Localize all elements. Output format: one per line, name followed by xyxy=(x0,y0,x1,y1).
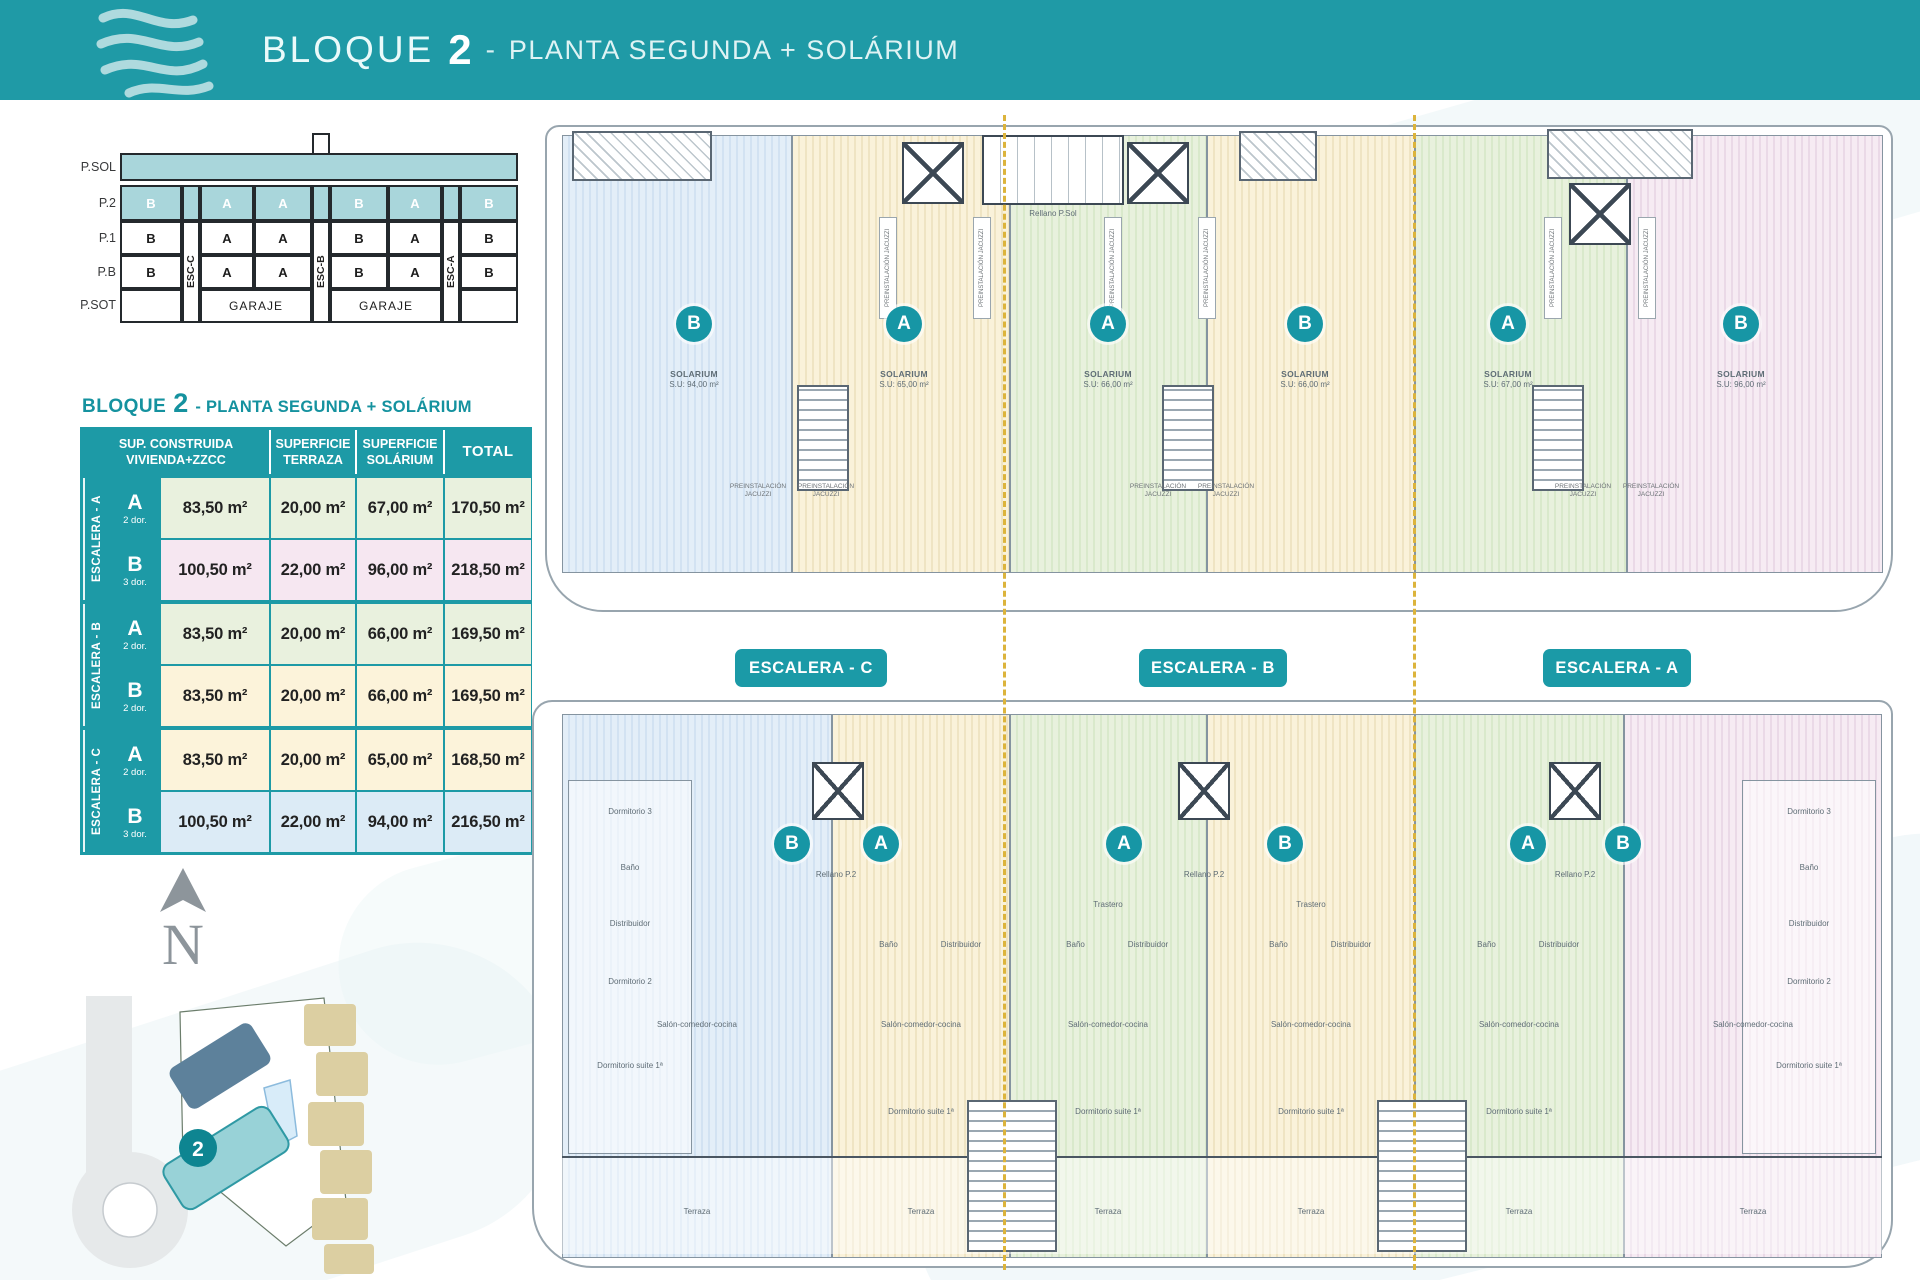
solarium-area-label: SOLARIUMS.U: 96,00 m² xyxy=(1686,369,1796,390)
floor-plan-sheet: BLOQUE 2 - PLANTA SEGUNDA + SOLÁRIUM P.S… xyxy=(0,0,1920,1280)
room-label-suite: Dormitorio suite 1ª xyxy=(1256,1107,1366,1117)
building-stack-diagram: P.SOL P.2 P.1 P.B P.SOT B A A B A B B A … xyxy=(78,133,520,323)
cell-total: 169,50 m² xyxy=(445,666,531,726)
room-label-dormitorio-3: Dormitorio 3 xyxy=(575,807,685,817)
unit-letter-badge: B xyxy=(1287,306,1323,342)
stack-cell-pb: A xyxy=(388,255,442,289)
stack-esc-cell xyxy=(442,185,460,221)
room-label-distribuidor: Distribuidor xyxy=(575,919,685,929)
cell-vivienda: 83,50 m² xyxy=(161,604,269,664)
unit-badge: B 3 dor. xyxy=(111,792,159,852)
table-header-terraza: SUPERFICIE TERRAZA xyxy=(271,430,355,474)
north-arrow-icon xyxy=(158,868,208,914)
table-header-construida: SUP. CONSTRUIDA VIVIENDA+ZZCC xyxy=(83,430,269,474)
solarium-unit-region-b xyxy=(1207,135,1415,573)
stack-cell-p2: A xyxy=(200,185,254,221)
elevator-core xyxy=(1127,142,1189,204)
stairs xyxy=(1532,385,1584,491)
room-label-salon: Salón-comedor-cocina xyxy=(1256,1020,1366,1030)
stairs xyxy=(1162,385,1214,491)
terraza-label: Terraza xyxy=(1469,1207,1569,1217)
solarium-unit-region-b xyxy=(1627,135,1883,573)
escalera-b-banner: ESCALERA - B xyxy=(1139,649,1287,687)
room-label-trastero: Trastero xyxy=(1276,900,1346,910)
cell-vivienda: 83,50 m² xyxy=(161,478,269,538)
table-header-total: TOTAL xyxy=(445,430,531,474)
unit-letter-badge: B xyxy=(774,826,810,862)
preinstalacion-jacuzzi-label: PREINSTALACIÓN JACUZZI xyxy=(1198,217,1216,319)
section-divider-line xyxy=(1003,115,1006,1270)
cell-total: 169,50 m² xyxy=(445,604,531,664)
room-label-distribuidor: Distribuidor xyxy=(1113,940,1183,950)
stack-cell-psot-empty xyxy=(460,289,518,323)
unit-letter-badge: A xyxy=(1490,306,1526,342)
table-group-escalera-a: ESCALERA - A A 2 dor. 83,50 m² 20,00 m² … xyxy=(83,478,529,600)
site-plan: 2 xyxy=(68,996,390,1278)
cell-solarium: 65,00 m² xyxy=(357,730,443,790)
stack-cell-p1: B xyxy=(460,221,518,255)
stack-garaje-cell: GARAJE xyxy=(200,289,312,323)
stairs xyxy=(1377,1100,1467,1252)
stack-garaje-cell: GARAJE xyxy=(330,289,442,323)
preinstalacion-jacuzzi-label: PREINSTALACIÓN JACUZZI xyxy=(1620,483,1682,499)
section-divider-line xyxy=(1413,115,1416,1270)
header-bar: BLOQUE 2 - PLANTA SEGUNDA + SOLÁRIUM xyxy=(0,0,1920,100)
unit-badge: A 2 dor. xyxy=(111,604,159,664)
cell-vivienda: 100,50 m² xyxy=(161,792,269,852)
cell-total: 168,50 m² xyxy=(445,730,531,790)
cell-vivienda: 83,50 m² xyxy=(161,730,269,790)
stack-row-label: P.B xyxy=(78,265,116,279)
stack-row-label: P.2 xyxy=(78,196,116,210)
room-label-dormitorio-2: Dormitorio 2 xyxy=(1754,977,1864,987)
terraza-label: Terraza xyxy=(647,1207,747,1217)
group-label-escalera-c: ESCALERA - C xyxy=(83,730,109,852)
terraza-label: Terraza xyxy=(1058,1207,1158,1217)
cell-total: 170,50 m² xyxy=(445,478,531,538)
terraza-label: Terraza xyxy=(1703,1207,1803,1217)
terraza-label: Terraza xyxy=(1261,1207,1361,1217)
escalera-c-banner: ESCALERA - C xyxy=(735,649,887,687)
cell-terraza: 22,00 m² xyxy=(271,540,355,600)
unit-letter-badge: A xyxy=(886,306,922,342)
end-unit-rooms: Dormitorio 3 Baño Distribuidor Dormitori… xyxy=(568,780,692,1154)
north-label: N xyxy=(138,919,228,971)
stack-tower xyxy=(312,133,330,155)
room-label-bano: Baño xyxy=(1459,940,1514,950)
solarium-unit-region-a xyxy=(792,135,1010,573)
stack-cell-pb: B xyxy=(330,255,388,289)
cell-solarium: 66,00 m² xyxy=(357,666,443,726)
elevator-core xyxy=(1569,183,1631,245)
room-label-dormitorio-3: Dormitorio 3 xyxy=(1754,807,1864,817)
solarium-area-label: SOLARIUMS.U: 94,00 m² xyxy=(639,369,749,390)
stack-psol-band xyxy=(120,153,518,181)
solarium-area-label: SOLARIUMS.U: 66,00 m² xyxy=(1250,369,1360,390)
terraza-strip xyxy=(562,1156,1882,1254)
title-separator: - xyxy=(486,34,495,66)
solarium-area-label: SOLARIUMS.U: 66,00 m² xyxy=(1053,369,1163,390)
stack-cell-p1: A xyxy=(200,221,254,255)
room-label-distribuidor: Distribuidor xyxy=(1316,940,1386,950)
stack-cell-p2: A xyxy=(254,185,312,221)
unit-letter-badge: A xyxy=(1090,306,1126,342)
room-label-salon: Salón-comedor-cocina xyxy=(1464,1020,1574,1030)
unit-badge: A 2 dor. xyxy=(111,478,159,538)
cell-total: 218,50 m² xyxy=(445,540,531,600)
room-label-bano: Baño xyxy=(1251,940,1306,950)
room-label-suite: Dormitorio suite 1ª xyxy=(1464,1107,1574,1117)
end-unit-rooms: Dormitorio 3 Baño Distribuidor Dormitori… xyxy=(1742,780,1876,1154)
room-label-bano: Baño xyxy=(1048,940,1103,950)
preinstalacion-jacuzzi-label: PREINSTALACIÓN JACUZZI xyxy=(1195,483,1257,499)
unit-letter-badge: B xyxy=(1267,826,1303,862)
title-subtitle: PLANTA SEGUNDA + SOLÁRIUM xyxy=(509,35,959,66)
room-label-suite: Dormitorio suite 1ª xyxy=(1053,1107,1163,1117)
page-title: BLOQUE 2 - PLANTA SEGUNDA + SOLÁRIUM xyxy=(262,0,959,100)
cell-vivienda: 83,50 m² xyxy=(161,666,269,726)
stack-esc-b-label: ESC-B xyxy=(312,221,330,323)
preinstalacion-jacuzzi-label: PREINSTALACIÓN JACUZZI xyxy=(727,483,789,499)
stack-cell-pb: A xyxy=(200,255,254,289)
cell-terraza: 20,00 m² xyxy=(271,478,355,538)
preinstalacion-jacuzzi-label: PREINSTALACIÓN JACUZZI xyxy=(879,217,897,319)
table-header-solarium: SUPERFICIE SOLÁRIUM xyxy=(357,430,443,474)
cell-terraza: 20,00 m² xyxy=(271,604,355,664)
cell-solarium: 66,00 m² xyxy=(357,604,443,664)
room-label-bano: Baño xyxy=(1754,863,1864,873)
stack-cell-p2: A xyxy=(388,185,442,221)
stack-esc-cell xyxy=(312,185,330,221)
preinstalacion-jacuzzi-label: PREINSTALACIÓN JACUZZI xyxy=(1552,483,1614,499)
elevator-core xyxy=(1549,762,1601,820)
room-label-salon: Salón-comedor-cocina xyxy=(1698,1020,1808,1030)
stack-cell-pb: B xyxy=(460,255,518,289)
table-title-number: 2 xyxy=(173,388,188,419)
solarium-floor-plan: Rellano P.Sol PREINSTALACIÓN JACUZZI PRE… xyxy=(545,125,1893,612)
cell-total: 216,50 m² xyxy=(445,792,531,852)
room-label-suite: Dormitorio suite 1ª xyxy=(575,1061,685,1071)
room-label-bano: Baño xyxy=(861,940,916,950)
roof-hatch-area xyxy=(572,131,712,181)
title-block-label: BLOQUE xyxy=(262,29,434,71)
stack-row-label: P.1 xyxy=(78,231,116,245)
elevator-core xyxy=(812,762,864,820)
stack-cell-p2: B xyxy=(330,185,388,221)
unit-badge: B 2 dor. xyxy=(111,666,159,726)
room-label-salon: Salón-comedor-cocina xyxy=(642,1020,752,1030)
roof-hatch-area xyxy=(1239,131,1317,181)
cell-terraza: 22,00 m² xyxy=(271,792,355,852)
preinstalacion-jacuzzi-label: PREINSTALACIÓN JACUZZI xyxy=(795,483,857,499)
room-label-suite: Dormitorio suite 1ª xyxy=(1754,1061,1864,1071)
room-label-distribuidor: Distribuidor xyxy=(1754,919,1864,929)
room-label-distribuidor: Distribuidor xyxy=(1524,940,1594,950)
north-indicator: N xyxy=(138,868,228,971)
cell-solarium: 94,00 m² xyxy=(357,792,443,852)
room-label-salon: Salón-comedor-cocina xyxy=(1053,1020,1163,1030)
table-box: SUP. CONSTRUIDA VIVIENDA+ZZCC SUPERFICIE… xyxy=(80,427,532,855)
cell-solarium: 96,00 m² xyxy=(357,540,443,600)
preinstalacion-jacuzzi-label: PREINSTALACIÓN JACUZZI xyxy=(1104,217,1122,319)
solarium-unit-region-b xyxy=(562,135,792,573)
culdesac-island xyxy=(103,1183,157,1237)
room-label-dormitorio-2: Dormitorio 2 xyxy=(575,977,685,987)
stack-cell-p1: B xyxy=(330,221,388,255)
preinstalacion-jacuzzi-label: PREINSTALACIÓN JACUZZI xyxy=(1638,217,1656,319)
solarium-area-label: SOLARIUMS.U: 65,00 m² xyxy=(849,369,959,390)
room-label-suite: Dormitorio suite 1ª xyxy=(866,1107,976,1117)
room-label-bano: Baño xyxy=(575,863,685,873)
unit-badge: A 2 dor. xyxy=(111,730,159,790)
surface-area-table: BLOQUE 2 - PLANTA SEGUNDA + SOLÁRIUM SUP… xyxy=(80,388,532,855)
preinstalacion-jacuzzi-label: PREINSTALACIÓN JACUZZI xyxy=(1544,217,1562,319)
table-title: BLOQUE 2 - PLANTA SEGUNDA + SOLÁRIUM xyxy=(82,388,532,419)
unit-letter-badge: A xyxy=(1510,826,1546,862)
rellano-p2-label: Rellano P.2 xyxy=(1510,870,1640,880)
planta-segunda-floor-plan: Dormitorio 3 Baño Distribuidor Dormitori… xyxy=(532,700,1893,1268)
table-title-label: BLOQUE xyxy=(82,396,166,418)
room-label-distribuidor: Distribuidor xyxy=(926,940,996,950)
stack-cell-p1: A xyxy=(254,221,312,255)
stack-cell-pb: B xyxy=(120,255,182,289)
block-2-badge-number: 2 xyxy=(192,1138,204,1161)
neighbor-houses xyxy=(304,1004,374,1274)
cell-terraza: 20,00 m² xyxy=(271,666,355,726)
company-logo xyxy=(95,0,227,100)
unit-letter-badge: A xyxy=(863,826,899,862)
preinstalacion-jacuzzi-label: PREINSTALACIÓN JACUZZI xyxy=(973,217,991,319)
group-label-escalera-a: ESCALERA - A xyxy=(83,478,109,600)
cell-solarium: 67,00 m² xyxy=(357,478,443,538)
preinstalacion-jacuzzi-label: PREINSTALACIÓN JACUZZI xyxy=(1127,483,1189,499)
table-title-rest: - PLANTA SEGUNDA + SOLÁRIUM xyxy=(195,398,472,417)
room-label-trastero: Trastero xyxy=(1073,900,1143,910)
stack-cell-psot-empty xyxy=(120,289,182,323)
stack-cell-p1: A xyxy=(388,221,442,255)
title-block-number: 2 xyxy=(448,26,471,74)
stack-row-label: P.SOL xyxy=(78,160,116,174)
stack-cell-p1: B xyxy=(120,221,182,255)
stack-cell-p2: B xyxy=(120,185,182,221)
unit-badge: B 3 dor. xyxy=(111,540,159,600)
unit-letter-badge: B xyxy=(1605,826,1641,862)
unit-letter-badge: B xyxy=(1723,306,1759,342)
stack-esc-c-label: ESC-C xyxy=(182,221,200,323)
room-label-salon: Salón-comedor-cocina xyxy=(866,1020,976,1030)
escalera-a-banner: ESCALERA - A xyxy=(1543,649,1691,687)
stairs xyxy=(797,385,849,491)
roof-hatch-area xyxy=(1547,129,1693,179)
cell-terraza: 20,00 m² xyxy=(271,730,355,790)
unit-letter-badge: B xyxy=(676,306,712,342)
table-header-row: SUP. CONSTRUIDA VIVIENDA+ZZCC SUPERFICIE… xyxy=(83,430,529,474)
table-group-escalera-c: ESCALERA - C A 2 dor. 83,50 m² 20,00 m² … xyxy=(83,730,529,852)
rellano-p2-label: Rellano P.2 xyxy=(1139,870,1269,880)
stack-cell-p2: B xyxy=(460,185,518,221)
stack-esc-cell xyxy=(182,185,200,221)
group-label-escalera-b: ESCALERA - B xyxy=(83,604,109,726)
rellano-p2-label: Rellano P.2 xyxy=(771,870,901,880)
elevator-core xyxy=(902,142,964,204)
cell-vivienda: 100,50 m² xyxy=(161,540,269,600)
terraza-label: Terraza xyxy=(871,1207,971,1217)
stack-cell-pb: A xyxy=(254,255,312,289)
table-group-escalera-b: ESCALERA - B A 2 dor. 83,50 m² 20,00 m² … xyxy=(83,604,529,726)
stairs xyxy=(967,1100,1057,1252)
elevator-core xyxy=(1178,762,1230,820)
stack-esc-a-label: ESC-A xyxy=(442,221,460,323)
unit-letter-badge: A xyxy=(1106,826,1142,862)
stack-row-label: P.SOT xyxy=(78,298,116,312)
